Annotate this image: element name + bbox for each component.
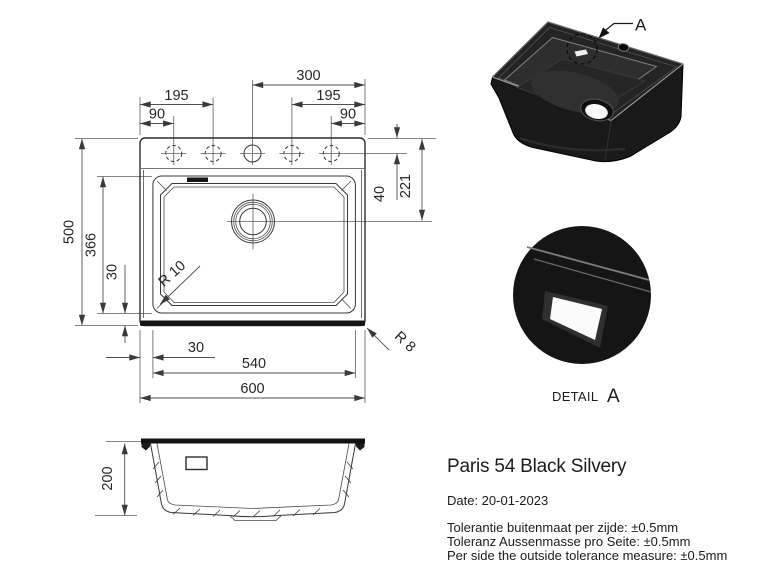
tap-holes <box>161 145 339 162</box>
rim-bar <box>141 439 365 444</box>
dim-label-195-right: 195 <box>316 88 340 104</box>
tolerance-line-en: Per side the outside tolerance measure: … <box>447 549 727 563</box>
detail-caption-letter: A <box>607 386 620 407</box>
dim-label-300: 300 <box>296 68 320 84</box>
tolerance-line-de: Toleranz Aussenmasse pro Seite: ±0.5mm <box>447 535 727 549</box>
iso-view: A <box>491 16 683 162</box>
dim-label-90-left: 90 <box>149 107 165 123</box>
detail-view: DETAIL A <box>513 226 651 407</box>
top-view: 300 195 195 90 90 500 366 30 40 221 30 5… <box>62 68 437 403</box>
dim-label-600: 600 <box>240 381 264 397</box>
rim-lip-right <box>356 444 365 451</box>
dim-label-200: 200 <box>100 466 116 490</box>
overflow-slot-section <box>186 457 207 470</box>
sink-bottom-edge <box>140 321 365 327</box>
product-info: Paris 54 Black Silvery Date: 20-01-2023 … <box>447 456 727 564</box>
detail-marker-label: A <box>635 16 647 35</box>
tolerance-notes: Tolerantie buitenmaat per zijde: ±0.5mm … <box>447 521 727 564</box>
inner-wall <box>157 444 349 509</box>
dim-label-540: 540 <box>242 356 266 372</box>
product-date: Date: 20-01-2023 <box>447 493 727 508</box>
detail-crop-circle <box>513 226 651 364</box>
sink-outline <box>140 138 365 326</box>
dim-label-30-bottom: 30 <box>188 340 204 356</box>
detail-caption: DETAIL <box>552 389 598 404</box>
dim-label-500: 500 <box>62 220 78 244</box>
dim-label-40: 40 <box>372 186 388 202</box>
bowl-outline <box>153 176 356 313</box>
rim-lip-left <box>142 444 151 451</box>
dim-label-195-left: 195 <box>164 88 188 104</box>
dim-label-30-left: 30 <box>105 264 121 280</box>
dimension-lines <box>82 85 422 398</box>
tolerance-line-nl: Tolerantie buitenmaat per zijde: ±0.5mm <box>447 521 727 535</box>
depth-dimension: 200 <box>95 442 141 516</box>
spec-sheet: 300 195 195 90 90 500 366 30 40 221 30 5… <box>0 0 778 573</box>
dim-label-366: 366 <box>84 233 100 257</box>
dim-label-221: 221 <box>398 174 414 198</box>
product-title: Paris 54 Black Silvery <box>447 456 727 478</box>
overflow-slot <box>187 178 208 183</box>
detail-leader-line <box>604 24 633 32</box>
dim-label-90-right: 90 <box>340 107 356 123</box>
radius-label-r8: R 8 <box>391 329 418 356</box>
side-view: 200 <box>95 439 365 521</box>
outer-wall <box>151 444 356 517</box>
